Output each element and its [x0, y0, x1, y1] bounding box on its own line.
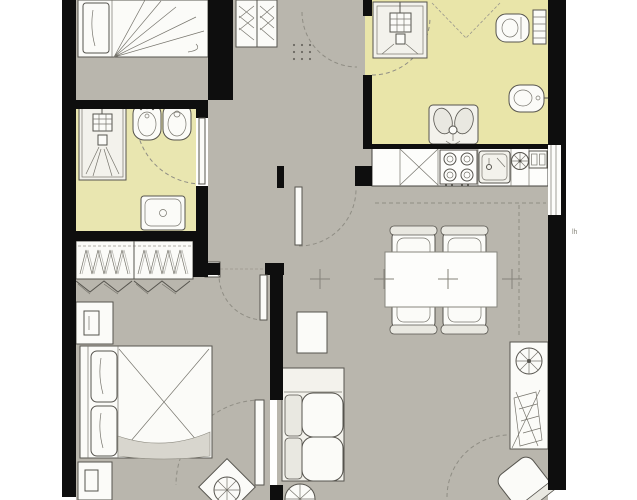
towel-radiator-icon [533, 10, 546, 44]
door-leaf-bathroom-left [199, 118, 205, 184]
hanger-wardrobe [76, 241, 193, 279]
wall-kitchen-top [363, 144, 548, 149]
floor-plan-page: lh [0, 0, 637, 500]
wall-right-outer [548, 0, 566, 490]
kitchen-sink-icon [479, 151, 510, 183]
extractor-fan-icon [512, 153, 529, 170]
sofa [282, 368, 344, 481]
nightstand-top [76, 302, 113, 344]
double-bed [80, 346, 212, 459]
wall-bedroom-hall [208, 0, 233, 100]
wall-bedroom-living [270, 275, 283, 400]
nightstand-bottom [78, 462, 112, 500]
hatched-wardrobe [236, 0, 277, 47]
door-leaf-hall-living [295, 187, 302, 245]
shower-icon [79, 103, 126, 180]
wall-left-outer [62, 0, 76, 497]
washbasin-icon [429, 105, 478, 144]
wall-bathroom-bottom [62, 231, 208, 241]
floor-plan-image: lh [0, 0, 637, 500]
single-bed [78, 0, 208, 57]
door-leaf-bedroom-top [260, 275, 267, 320]
washbasin-icon [141, 196, 185, 234]
toilet-icon [496, 14, 529, 42]
window-right-wall [548, 145, 561, 215]
margin-annotation: lh [572, 229, 578, 236]
desk [510, 342, 548, 449]
coffee-table [297, 312, 327, 353]
shower-icon [373, 2, 427, 58]
wall-bedroom-bottom [62, 100, 208, 109]
kitchen-row [372, 148, 548, 186]
door-leaf-bedroom-bottom [255, 400, 264, 485]
plant-bedroom-fan [214, 477, 240, 500]
appliance-icon [529, 151, 547, 168]
